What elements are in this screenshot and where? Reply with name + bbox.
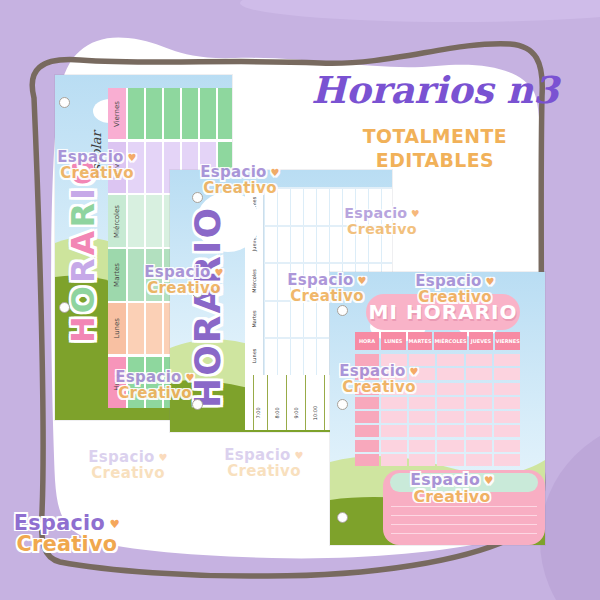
t1-cell (164, 88, 180, 139)
t1-row-label-text: Jueves (113, 156, 121, 179)
promo-image: ViernesJuevesMiércolesMartesLunesHora HO… (0, 0, 600, 600)
t3-cell (494, 383, 520, 395)
t1-row-viernes: Viernes (108, 88, 232, 139)
t2-hole-punch (192, 192, 203, 203)
t3-notes-lines (391, 498, 537, 540)
t3-row (355, 397, 520, 409)
t2-day-label: Martes (251, 310, 257, 327)
t1-cell (128, 357, 144, 408)
t2-time-label: 10:00 (312, 406, 318, 420)
t3-cell (494, 354, 520, 366)
t3-cell (409, 454, 435, 466)
t3-header-jueves: JUEVES (469, 332, 494, 350)
t3-row (355, 383, 520, 395)
t3-cell (466, 440, 492, 452)
t1-cell (146, 195, 162, 246)
t3-cell (355, 397, 379, 409)
t1-cell (146, 142, 162, 193)
t3-cell (466, 411, 492, 423)
t3-cell (466, 397, 492, 409)
t3-cell (494, 425, 520, 437)
t1-row-label: Jueves (108, 142, 126, 193)
t3-cell (409, 425, 435, 437)
t3-header-martes: MARTES (408, 332, 433, 350)
t2-horario-title: HORARIO (190, 206, 226, 408)
t2-day-label: Lunes (251, 349, 257, 364)
t2-day-label: Miércoles (251, 269, 257, 293)
t3-header-hora: HORA (355, 332, 379, 350)
t1-row-label: Hora (108, 357, 126, 408)
t1-cell (128, 142, 144, 193)
t1-cell (128, 88, 144, 139)
t3-row (355, 425, 520, 437)
t3-cell (381, 454, 407, 466)
t1-row-label-text: Martes (113, 263, 121, 287)
t3-cell (355, 383, 379, 395)
t3-cell (466, 454, 492, 466)
t1-row-label: Miércoles (108, 195, 126, 246)
t3-hole-punch (337, 399, 348, 410)
t2-time-label: 8:00 (274, 407, 280, 418)
t1-row-label-text: Viernes (113, 101, 121, 127)
t1-horario-letter: R (64, 255, 102, 283)
t3-row (355, 454, 520, 466)
t3-cell (437, 425, 463, 437)
t1-row-label-text: Lunes (113, 318, 121, 339)
t3-cell (409, 411, 435, 423)
t3-cell (381, 368, 407, 380)
t3-cell (409, 383, 435, 395)
t3-cell (355, 454, 379, 466)
t1-cell (146, 88, 162, 139)
t3-cell (381, 383, 407, 395)
t1-cell (128, 195, 144, 246)
t3-cell (437, 397, 463, 409)
t3-row (355, 440, 520, 452)
t3-cell (355, 354, 379, 366)
t3-table-header: HORALUNESMARTESMIÉRCOLESJUEVESVIERNES (355, 332, 520, 350)
t1-row-label: Martes (108, 249, 126, 300)
t1-escolar-script: escolar (89, 131, 104, 179)
t3-cell (409, 354, 435, 366)
t3-notes-label: NOTAS (390, 473, 538, 492)
t3-cell (494, 454, 520, 466)
t2-hole-punch (192, 399, 203, 410)
t3-cell (355, 440, 379, 452)
t2-time-label: 7:00 (255, 407, 261, 418)
t1-hole-punch (59, 302, 70, 313)
t3-hole-punch (337, 305, 348, 316)
t1-row-label: Lunes (108, 303, 126, 354)
t3-cell (466, 383, 492, 395)
t3-cell (437, 368, 463, 380)
t3-cell (466, 354, 492, 366)
t1-horario-title: HORARIO (67, 155, 99, 343)
t3-cell (381, 425, 407, 437)
t1-end-cell (218, 88, 232, 139)
t3-cell (437, 440, 463, 452)
t3-cell (409, 368, 435, 380)
t1-cell (146, 249, 162, 300)
t1-horario-letter: R (64, 200, 102, 228)
t3-cell (355, 425, 379, 437)
t3-cell (494, 397, 520, 409)
t1-row-label: Viernes (108, 88, 126, 139)
t3-table-rows (355, 354, 520, 466)
page-subtitle: TOTALMENTE EDITABLES (306, 124, 564, 172)
t3-cell (494, 440, 520, 452)
t3-cell (494, 368, 520, 380)
t1-horario-letter: A (64, 228, 102, 256)
t3-cell (494, 411, 520, 423)
t3-cell (437, 354, 463, 366)
t3-cell (355, 411, 379, 423)
t3-cell (437, 383, 463, 395)
t3-cell (381, 440, 407, 452)
t3-cell (381, 397, 407, 409)
t3-cell (466, 368, 492, 380)
t3-cell (409, 440, 435, 452)
t1-cell (128, 303, 144, 354)
t1-row-label-text: Hora (113, 374, 121, 391)
t3-row (355, 368, 520, 380)
t3-cell (409, 397, 435, 409)
t1-hole-punch (59, 97, 70, 108)
t3-hole-punch (337, 512, 348, 523)
t2-hole-punch (192, 287, 203, 298)
t2-time-label: 9:00 (293, 407, 299, 418)
t1-horario-letter: H (64, 313, 102, 343)
t1-cell (128, 249, 144, 300)
template-3-mi-horario: MI HORARIO HORALUNESMARTESMIÉRCOLESJUEVE… (330, 272, 545, 545)
t1-cell (146, 303, 162, 354)
t3-cell (381, 354, 407, 366)
t1-cell (182, 88, 198, 139)
t3-cell (466, 425, 492, 437)
t3-cell (381, 411, 407, 423)
t1-cell (146, 357, 162, 408)
page-title: Horarios n3 (305, 68, 565, 112)
t3-banner: MI HORARIO (366, 294, 520, 330)
t3-cell (355, 368, 379, 380)
t1-row-label-text: Miércoles (113, 205, 121, 238)
t3-row (355, 354, 520, 366)
t3-row (355, 411, 520, 423)
t1-cell (200, 88, 216, 139)
t3-header-viernes: VIERNES (495, 332, 520, 350)
t1-horario-letter: I (64, 185, 102, 200)
t3-cell (437, 454, 463, 466)
t3-header-lunes: LUNES (381, 332, 406, 350)
t3-notes-box: NOTAS (383, 470, 545, 545)
t3-header-miércoles: MIÉRCOLES (434, 332, 466, 350)
t3-cell (437, 411, 463, 423)
